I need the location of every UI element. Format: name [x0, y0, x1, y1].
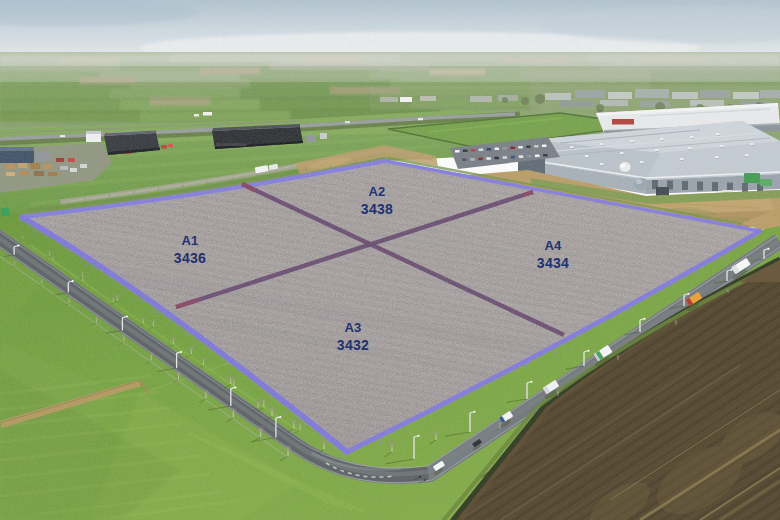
svg-text:3438: 3438: [361, 201, 393, 217]
svg-text:A4: A4: [544, 238, 562, 253]
svg-text:A1: A1: [181, 233, 198, 248]
svg-text:A2: A2: [368, 184, 385, 199]
svg-text:A3: A3: [344, 320, 361, 335]
svg-text:3434: 3434: [537, 255, 569, 271]
svg-text:3432: 3432: [337, 337, 369, 353]
svg-text:3436: 3436: [174, 250, 206, 266]
